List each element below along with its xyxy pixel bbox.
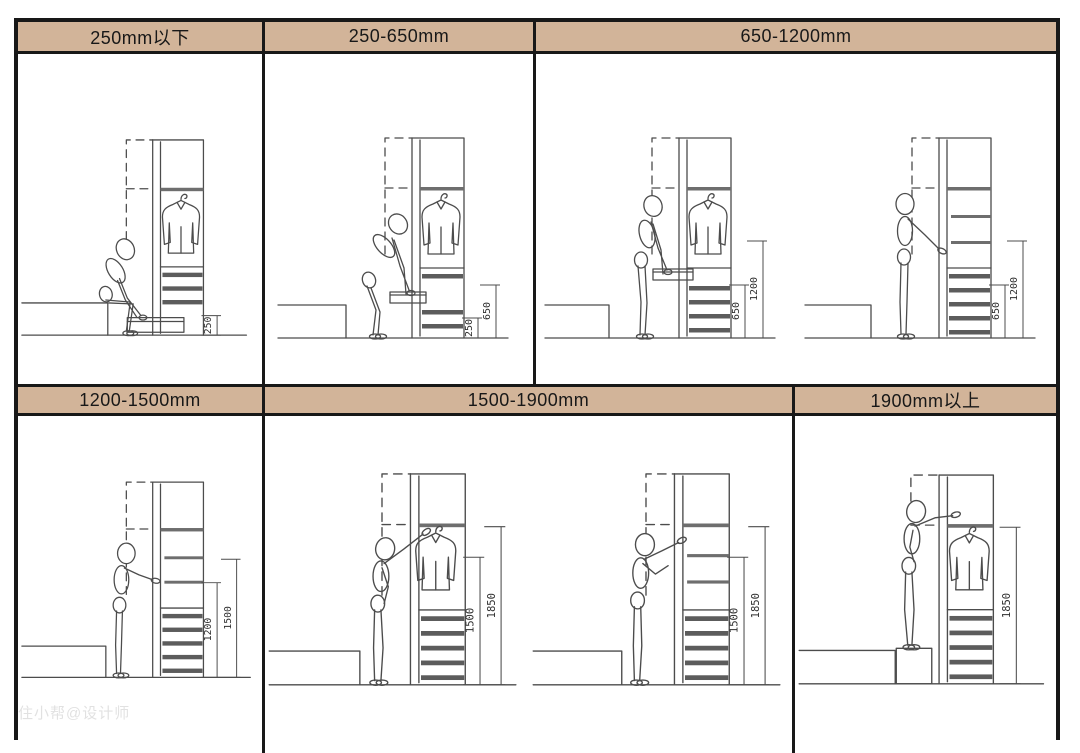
diagram-frame: 250mm以下 250-650mm 650-1200mm: [14, 18, 1060, 740]
panel-1500-1900: 1500 1850: [265, 416, 795, 753]
jacket-icon: [422, 194, 460, 254]
drawer-stack: [947, 268, 991, 335]
panel-250-650: 250 650: [265, 54, 536, 384]
header-250mm-below: 250mm以下: [18, 22, 265, 54]
scene-arm-raised: 1500 1850: [529, 416, 793, 753]
dimension-650: 650: [480, 285, 500, 338]
header-label: 1200-1500mm: [79, 390, 201, 411]
header-250-650: 250-650mm: [265, 22, 536, 54]
mannequin-figure: [902, 499, 961, 649]
panel-1900mm-above: 1850: [795, 416, 1056, 753]
jacket-icon: [950, 527, 990, 590]
bench: [22, 646, 106, 677]
panel-250mm-below: 250: [18, 54, 265, 384]
bench: [545, 305, 609, 338]
drawer-stack: [419, 610, 465, 680]
scene-on-stool: 1850: [795, 416, 1056, 753]
stool: [896, 648, 931, 683]
bench: [799, 650, 895, 683]
header-label: 250-650mm: [349, 26, 450, 47]
svg-text:1200: 1200: [203, 618, 214, 642]
watermark: 住小帮@设计师: [18, 702, 130, 723]
panel-650-1200: 650 1200: [536, 54, 1056, 384]
mannequin-figure: [360, 210, 415, 339]
svg-text:250: 250: [203, 316, 214, 334]
jacket-icon: [162, 194, 199, 253]
svg-text:1850: 1850: [1001, 593, 1013, 618]
header-650-1200: 650-1200mm: [536, 22, 1056, 54]
dashed-reach-line: [126, 482, 152, 594]
drawer-stack: [947, 610, 993, 679]
dimension-1850: 1850: [484, 527, 505, 685]
dimension-1850: 1850: [748, 527, 769, 685]
dashed-reach-line: [912, 138, 939, 254]
header-label: 1900mm以上: [870, 387, 980, 413]
svg-text:1500: 1500: [728, 608, 740, 633]
scene-reach-hanger: 1500 1850: [265, 416, 529, 753]
pulled-drawer: [127, 318, 184, 333]
scene-lean-drawer: 650 1200: [536, 54, 796, 384]
svg-text:1200: 1200: [749, 277, 760, 301]
wardrobe: [939, 138, 991, 338]
mannequin-figure: [635, 193, 673, 339]
dimension-1200: 1200: [747, 241, 767, 338]
svg-text:250: 250: [464, 319, 475, 337]
mannequin-figure: [630, 534, 687, 686]
wardrobe: [153, 482, 204, 677]
scene-arm-horizontal: 650 1200: [796, 54, 1056, 384]
svg-text:1500: 1500: [223, 606, 234, 630]
bottom-grid: 1200-1500mm 1500-1900mm 1900mm以上: [18, 384, 1056, 736]
bench: [269, 651, 360, 685]
jacket-icon: [689, 194, 727, 254]
header-1900mm-above: 1900mm以上: [795, 384, 1056, 416]
scene-bending: 250 650: [265, 54, 533, 384]
bench: [805, 305, 871, 338]
dimension-1500: 1500: [727, 557, 748, 685]
drawer-stack: [160, 267, 203, 305]
dashed-reach-line: [382, 474, 410, 595]
header-label: 1500-1900mm: [468, 390, 590, 411]
mannequin-figure: [98, 236, 147, 336]
svg-text:1500: 1500: [465, 608, 477, 633]
bench: [22, 303, 108, 335]
dimension-1500: 1500: [463, 557, 484, 685]
header-1200-1500: 1200-1500mm: [18, 384, 265, 416]
svg-text:650: 650: [731, 302, 742, 320]
dimension-650: 650: [729, 285, 749, 338]
header-1500-1900: 1500-1900mm: [265, 384, 795, 416]
wardrobe: [674, 474, 729, 685]
dashed-reach-line: [385, 138, 412, 254]
svg-text:650: 650: [991, 302, 1002, 320]
dimension-250: 250: [201, 316, 221, 336]
dimension-650: 650: [989, 285, 1009, 338]
drawer-stack: [160, 608, 203, 673]
bench: [278, 305, 346, 338]
dimension-250: 250: [462, 318, 482, 338]
dimension-1200: 1200: [201, 583, 221, 678]
dimension-1200: 1200: [1007, 241, 1027, 338]
svg-text:1200: 1200: [1009, 277, 1020, 301]
bench: [533, 651, 622, 685]
scene-sitting: 250: [18, 54, 262, 384]
svg-text:650: 650: [482, 302, 493, 320]
dimension-1500: 1500: [221, 559, 241, 677]
dashed-reach-line: [126, 140, 152, 253]
svg-text:1850: 1850: [749, 593, 761, 618]
svg-text:1850: 1850: [486, 593, 498, 618]
header-label: 650-1200mm: [740, 26, 851, 47]
wardrobe: [410, 474, 465, 685]
dimension-1850: 1850: [1000, 527, 1021, 684]
header-label: 250mm以下: [90, 24, 190, 50]
drawer-stack: [682, 610, 728, 680]
top-grid: 250mm以下 250-650mm 650-1200mm: [18, 22, 1056, 384]
